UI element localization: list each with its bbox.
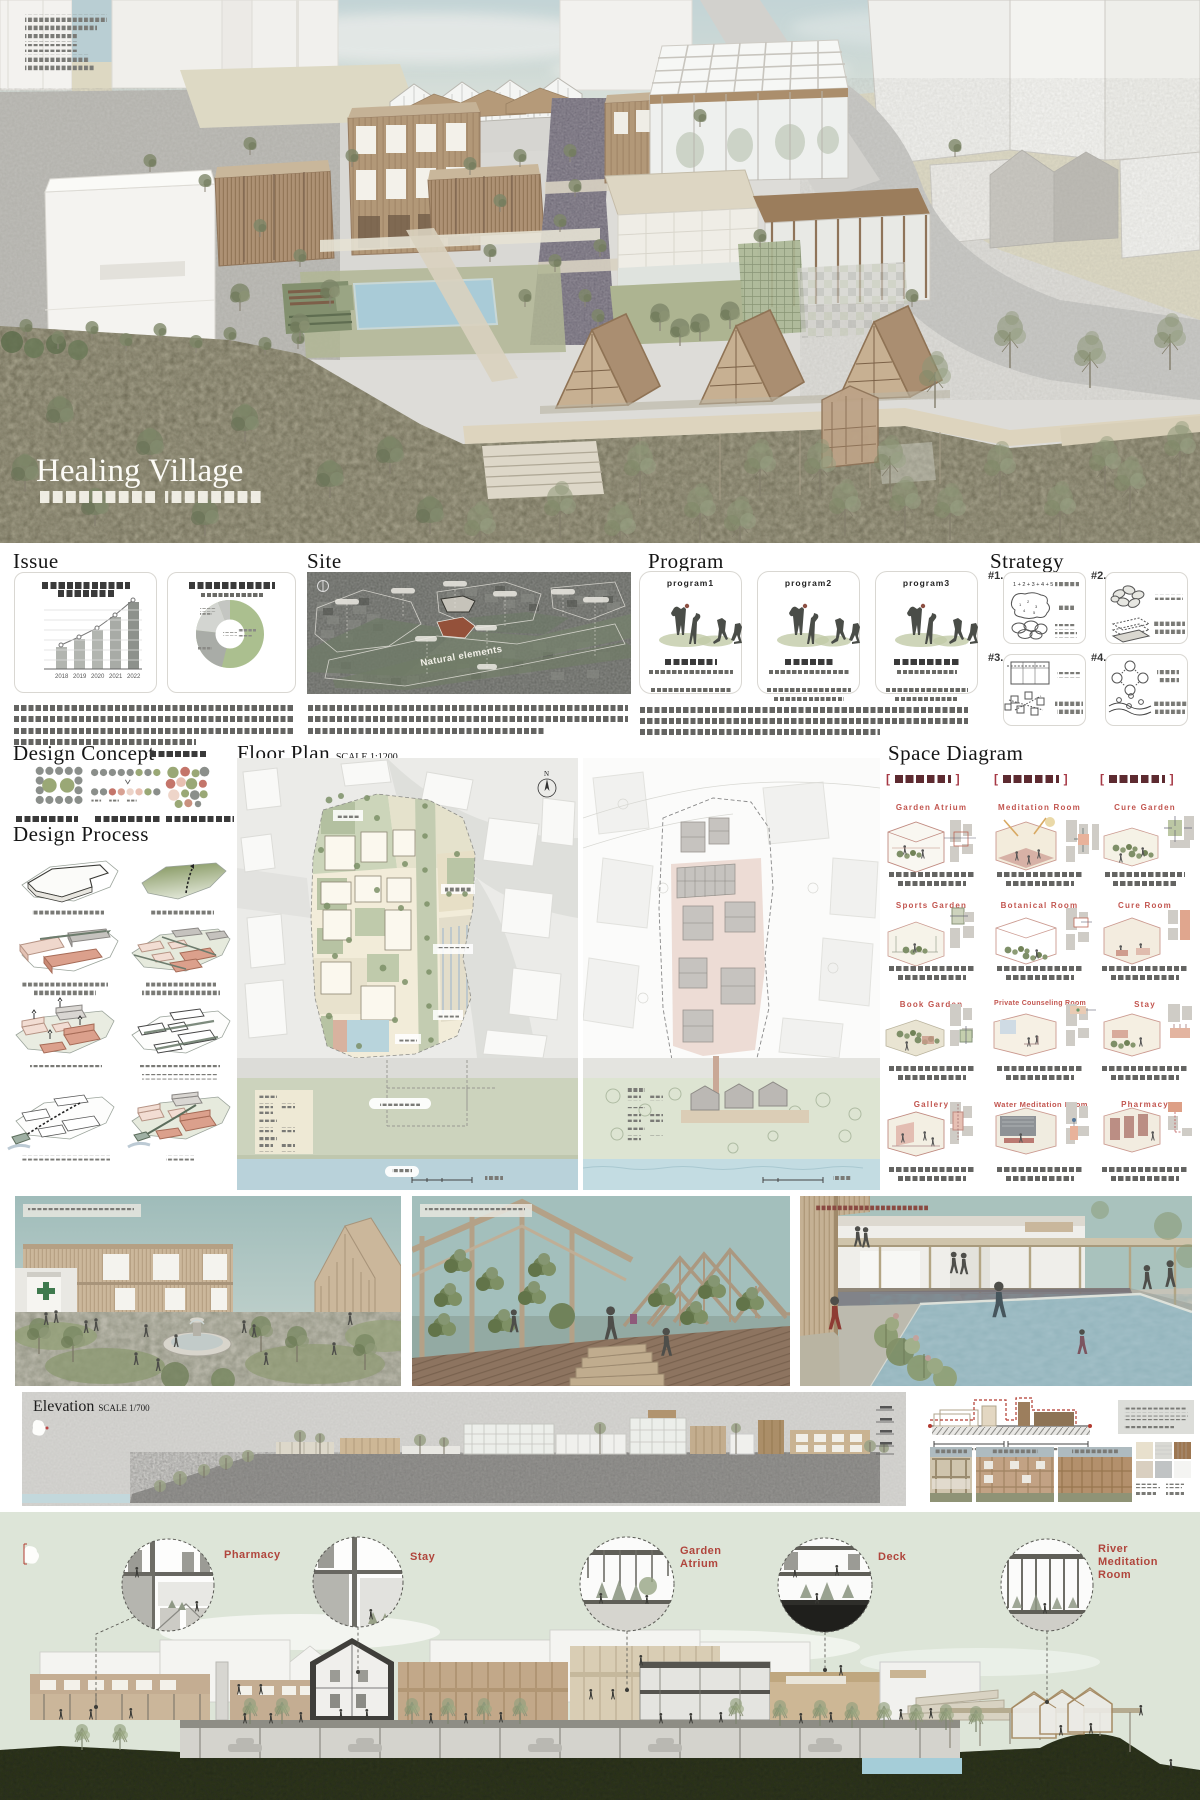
svg-text:4: 4 <box>1023 608 1026 613</box>
svg-text:1: 1 <box>1019 602 1022 607</box>
svg-text:Healing Village: Healing Village <box>36 453 243 489</box>
svg-text:N: N <box>544 770 549 778</box>
svg-text:Garden: Garden <box>680 1545 722 1557</box>
svg-text:3: 3 <box>1035 604 1038 609</box>
svg-text:2018: 2018 <box>55 674 69 680</box>
svg-text:2019: 2019 <box>73 674 87 680</box>
svg-text:Pharmacy: Pharmacy <box>224 1549 281 1561</box>
svg-text:Atrium: Atrium <box>680 1558 718 1570</box>
svg-text:2022: 2022 <box>127 674 141 680</box>
svg-text:2: 2 <box>1027 599 1030 604</box>
svg-text:5: 5 <box>1033 610 1036 615</box>
svg-text:Stay: Stay <box>410 1551 436 1563</box>
svg-text:River: River <box>1098 1543 1128 1555</box>
svg-text:2021: 2021 <box>109 674 123 680</box>
svg-text:Meditation: Meditation <box>1098 1556 1158 1568</box>
svg-text:Room: Room <box>1098 1569 1131 1581</box>
svg-text:Deck: Deck <box>878 1551 907 1563</box>
svg-text:2020: 2020 <box>91 674 105 680</box>
svg-text:1 + 2 + 3 + 4 + 5: 1 + 2 + 3 + 4 + 5 <box>1013 582 1053 588</box>
